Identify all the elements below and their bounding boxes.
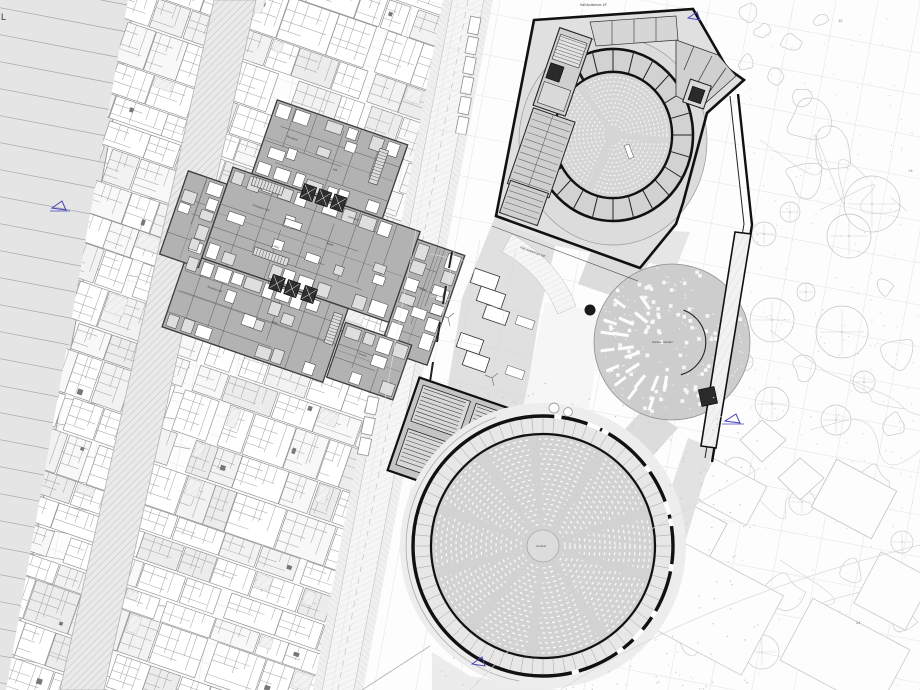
svg-text:+4: +4 — [908, 168, 913, 173]
svg-text:Hall Auditorium 1/F: Hall Auditorium 1/F — [580, 3, 607, 7]
svg-text:24: 24 — [856, 620, 861, 625]
svg-text:12: 12 — [838, 18, 843, 23]
svg-text:L: L — [1, 12, 6, 22]
svg-text:Central: Central — [536, 544, 546, 548]
svg-text:Sunken Garden: Sunken Garden — [652, 340, 673, 344]
